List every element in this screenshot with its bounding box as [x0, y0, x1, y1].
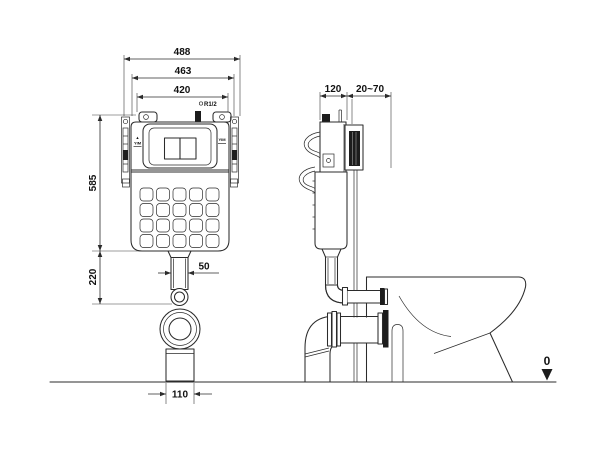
inlet-label: R1/2 — [204, 102, 217, 108]
outlet-pipe-front — [168, 251, 191, 306]
level-marker-left-label: YIM — [134, 141, 142, 146]
cistern-side-profile — [299, 110, 347, 249]
outlet-bottom-view — [160, 309, 200, 381]
tank-upper-frame — [131, 122, 229, 172]
dim-20-70-label: 20~70 — [356, 84, 385, 95]
front-view: 488 463 420 585 220 — [88, 47, 240, 404]
dim-585-label: 585 — [88, 174, 99, 191]
inlet-nipple-icon — [195, 111, 201, 122]
outlet-elbow-ring — [171, 289, 188, 306]
cistern-tank-side — [315, 172, 347, 249]
flush-pipe-flange — [380, 288, 388, 305]
dim-120-label: 120 — [325, 84, 342, 95]
tank-body — [131, 172, 229, 251]
dim-110-label: 110 — [172, 390, 189, 401]
dim-420-label: 420 — [174, 85, 191, 96]
dim-220-label: 220 — [88, 268, 99, 285]
ground-and-datum: 0 — [50, 354, 556, 382]
wall-bracket-upper — [304, 132, 320, 158]
dimension-110: 110 — [148, 383, 212, 404]
datum-zero-label: 0 — [544, 354, 551, 368]
left-mounting-rail — [122, 117, 130, 187]
pipe-coupling-rings — [328, 312, 341, 348]
datum-triangle-icon — [542, 369, 553, 381]
dim-488-label: 488 — [174, 47, 191, 58]
dim-463-label: 463 — [175, 66, 192, 77]
wall-frame-lines — [354, 168, 357, 382]
drain-flange — [378, 310, 389, 348]
right-mounting-rail — [231, 117, 239, 187]
flush-plate-assembly — [345, 125, 363, 170]
side-view: 120 20~70 — [299, 84, 525, 382]
inlet-side-icon — [322, 114, 330, 122]
dim-50-label: 50 — [198, 262, 210, 273]
toilet-pan-profile — [367, 277, 526, 382]
mounting-ears — [139, 112, 231, 122]
trap-channel — [392, 325, 403, 383]
level-marker-right-label: YIM — [218, 137, 226, 142]
level-marker-symbol: ▲ — [136, 135, 140, 140]
wall-bracket-lower — [299, 167, 315, 193]
dimension-488: 488 — [124, 47, 240, 116]
drawing-svg: 488 463 420 585 220 — [0, 0, 600, 456]
technical-drawing-cistern-installation: 488 463 420 585 220 — [0, 0, 600, 456]
flush-plate-hatch — [349, 131, 360, 166]
